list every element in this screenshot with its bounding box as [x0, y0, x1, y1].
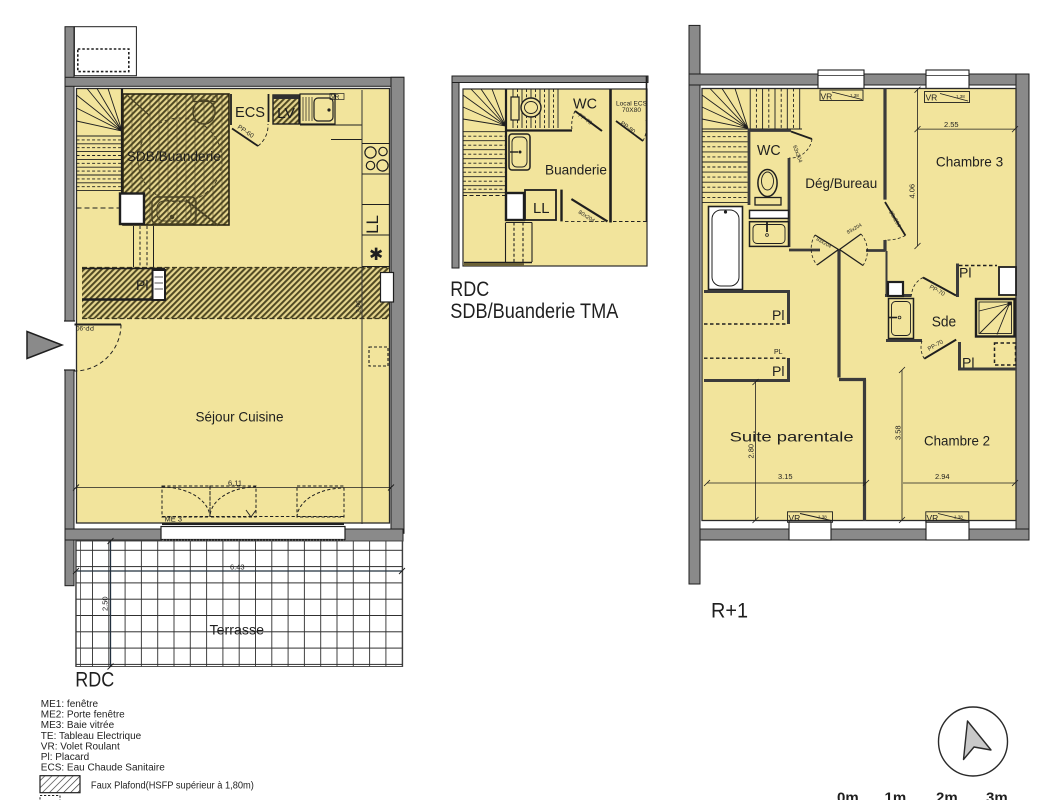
- svg-text:LL: LL: [363, 215, 382, 234]
- svg-text:RDC: RDC: [75, 669, 114, 692]
- svg-text:VR: VR: [789, 513, 801, 523]
- svg-text:6.43: 6.43: [230, 563, 245, 572]
- svg-text:ECS: Eau Chaude Sanitaire: ECS: Eau Chaude Sanitaire: [41, 763, 165, 774]
- svg-text:✱: ✱: [369, 245, 383, 264]
- svg-text:Pl: Placard: Pl: Placard: [41, 752, 89, 763]
- svg-text:Pl: Pl: [959, 265, 971, 281]
- svg-text:2.86: 2.86: [356, 300, 363, 313]
- svg-text:Dég/Bureau: Dég/Bureau: [805, 175, 877, 191]
- svg-text:3.15: 3.15: [778, 472, 793, 481]
- svg-text:WC: WC: [757, 142, 781, 159]
- svg-text:VR: VR: [926, 93, 938, 103]
- svg-text:Pl: Pl: [962, 355, 974, 371]
- svg-text:VR: VR: [821, 92, 833, 102]
- svg-text:2.50: 2.50: [101, 596, 110, 611]
- svg-text:Séjour Cuisine: Séjour Cuisine: [196, 409, 284, 425]
- svg-text:1.38: 1.38: [818, 515, 827, 520]
- svg-text:3.58: 3.58: [894, 425, 903, 440]
- svg-text:3m: 3m: [986, 790, 1008, 800]
- svg-text:2.80: 2.80: [747, 444, 756, 459]
- svg-text:4.06: 4.06: [908, 184, 917, 199]
- svg-text:PL: PL: [774, 349, 783, 356]
- svg-text:2.55: 2.55: [944, 120, 959, 129]
- svg-text:ECS: ECS: [235, 104, 265, 121]
- svg-text:Suite parentale: Suite parentale: [730, 429, 854, 445]
- svg-text:Pl: Pl: [136, 277, 148, 293]
- svg-text:0m: 0m: [837, 790, 859, 800]
- svg-text:R+1: R+1: [711, 600, 748, 623]
- svg-text:2m: 2m: [936, 790, 958, 800]
- svg-text:Faux Plafond(HSFP supérieur à: Faux Plafond(HSFP supérieur à 1,80m): [91, 781, 254, 792]
- svg-text:2.94: 2.94: [935, 472, 950, 481]
- svg-text:Terrasse: Terrasse: [210, 622, 265, 638]
- svg-text:VR: Volet Roulant: VR: Volet Roulant: [41, 741, 120, 752]
- svg-text:RDC: RDC: [450, 278, 489, 301]
- svg-text:70X80: 70X80: [622, 107, 641, 114]
- svg-text:1.38: 1.38: [850, 93, 859, 98]
- svg-text:VR: VR: [927, 513, 939, 523]
- svg-text:TE: Tableau Electrique: TE: Tableau Electrique: [41, 731, 142, 742]
- svg-text:SDB/Buanderie: SDB/Buanderie: [127, 148, 221, 164]
- svg-text:Chambre 2: Chambre 2: [924, 433, 990, 449]
- svg-text:ME2: Porte fenêtre: ME2: Porte fenêtre: [41, 710, 125, 721]
- svg-text:VR: VR: [331, 95, 340, 101]
- svg-text:ME 3: ME 3: [165, 515, 183, 524]
- svg-text:LL: LL: [533, 200, 550, 217]
- svg-text:1.38: 1.38: [954, 515, 963, 520]
- svg-text:LV: LV: [277, 105, 295, 122]
- svg-text:Chambre 3: Chambre 3: [936, 153, 1003, 169]
- svg-text:ME1: fenêtre: ME1: fenêtre: [41, 699, 99, 710]
- svg-text:1m: 1m: [885, 790, 907, 800]
- svg-text:Sde: Sde: [932, 314, 957, 331]
- svg-text:ME3: Baie vitrée: ME3: Baie vitrée: [41, 720, 115, 731]
- svg-text:Pl: Pl: [772, 363, 784, 379]
- svg-text:Buanderie: Buanderie: [545, 162, 607, 178]
- svg-text:SDB/Buanderie TMA: SDB/Buanderie TMA: [450, 300, 618, 323]
- svg-text:WC: WC: [573, 96, 597, 113]
- svg-text:Pl: Pl: [772, 307, 784, 323]
- svg-text:1.38: 1.38: [956, 94, 965, 99]
